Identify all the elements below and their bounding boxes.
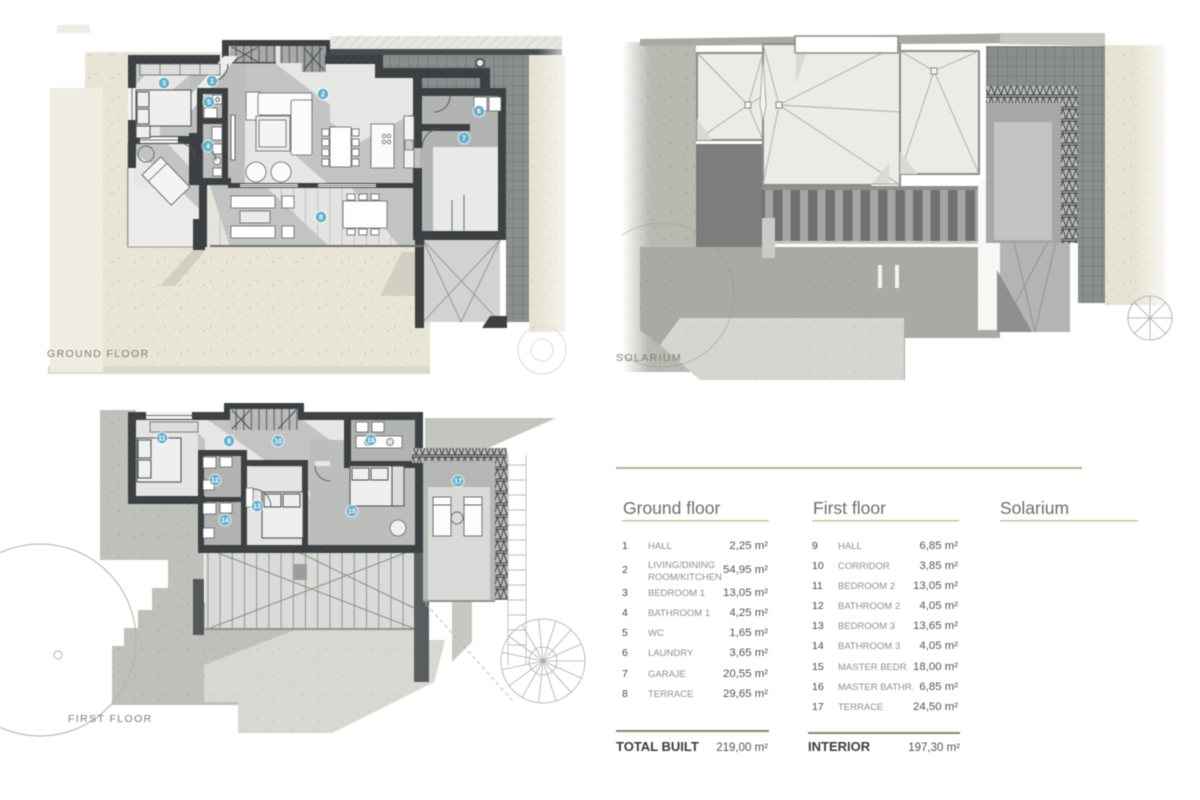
svg-text:54,95 m²: 54,95 m² [723,564,768,576]
svg-text:BATHROOM 1: BATHROOM 1 [648,608,710,619]
svg-text:14: 14 [221,518,229,525]
svg-text:12: 12 [211,478,219,485]
svg-text:14: 14 [812,640,824,652]
svg-text:13: 13 [812,620,824,632]
svg-text:TERRACE: TERRACE [838,702,883,713]
svg-text:2: 2 [321,92,325,99]
svg-text:FIRST FLOOR: FIRST FLOOR [68,713,153,725]
svg-text:BATHROOM 3: BATHROOM 3 [838,641,900,652]
svg-text:Ground floor: Ground floor [623,498,720,518]
svg-text:HALL: HALL [838,541,862,552]
svg-text:6: 6 [477,109,481,116]
svg-text:16: 16 [367,438,375,445]
svg-text:1: 1 [622,540,628,552]
svg-text:219,00 m²: 219,00 m² [716,742,768,754]
svg-text:GARAJE: GARAJE [648,669,686,680]
svg-text:29,65 m²: 29,65 m² [723,688,768,700]
svg-text:2: 2 [622,564,628,576]
svg-text:13,65 m²: 13,65 m² [913,620,958,632]
svg-text:SOLARIUM: SOLARIUM [616,352,682,364]
svg-text:7: 7 [622,668,628,680]
svg-text:5: 5 [622,627,628,639]
svg-text:WC: WC [648,628,664,639]
svg-text:BATHROOM 2: BATHROOM 2 [838,601,900,612]
svg-text:LIVING/DINING: LIVING/DINING [648,560,715,571]
svg-text:8: 8 [622,688,628,700]
svg-text:5: 5 [207,100,211,107]
svg-text:8: 8 [319,215,323,222]
svg-text:15: 15 [348,509,356,516]
svg-text:24,50 m²: 24,50 m² [913,701,958,713]
svg-text:4,05 m²: 4,05 m² [919,640,958,652]
svg-text:10: 10 [812,560,824,572]
svg-text:3,85 m²: 3,85 m² [919,560,958,572]
svg-text:18,00 m²: 18,00 m² [913,661,958,673]
svg-text:1: 1 [210,79,214,86]
svg-text:12: 12 [812,600,824,612]
svg-text:LAUNDRY: LAUNDRY [648,648,694,659]
svg-text:7: 7 [462,136,466,143]
svg-text:MASTER BEDR.: MASTER BEDR. [838,662,909,673]
svg-text:MASTER BATHR.: MASTER BATHR. [838,682,914,693]
svg-text:1,65 m²: 1,65 m² [729,627,768,639]
svg-text:11: 11 [812,580,823,592]
svg-text:GROUND FLOOR: GROUND FLOOR [47,348,150,360]
svg-text:4: 4 [206,144,210,151]
svg-text:CORRIDOR: CORRIDOR [838,561,890,572]
svg-text:197,30 m²: 197,30 m² [908,742,960,754]
svg-text:16: 16 [812,681,824,693]
svg-text:13,05 m²: 13,05 m² [913,580,958,592]
svg-text:6,85 m²: 6,85 m² [919,540,958,552]
svg-text:11: 11 [158,436,166,443]
svg-text:17: 17 [454,479,462,486]
svg-text:13: 13 [253,504,261,511]
svg-text:TERRACE: TERRACE [648,689,693,700]
svg-text:3,65 m²: 3,65 m² [729,647,768,659]
svg-text:4,05 m²: 4,05 m² [919,600,958,612]
svg-text:13,05 m²: 13,05 m² [723,587,768,599]
svg-text:4,25 m²: 4,25 m² [729,607,768,619]
svg-text:3: 3 [162,81,166,88]
svg-text:INTERIOR: INTERIOR [808,739,871,754]
svg-text:Solarium: Solarium [1000,498,1069,518]
svg-text:BEDROOM 3: BEDROOM 3 [838,621,895,632]
svg-text:20,55 m²: 20,55 m² [723,668,768,680]
svg-text:BEDROOM 2: BEDROOM 2 [838,581,895,592]
svg-text:3: 3 [622,587,628,599]
svg-text:ROOM/KITCHEN: ROOM/KITCHEN [648,572,722,583]
svg-text:TOTAL BUILT: TOTAL BUILT [616,739,699,754]
svg-text:6,85 m²: 6,85 m² [919,681,958,693]
svg-text:BEDROOM 1: BEDROOM 1 [648,588,705,599]
svg-text:First floor: First floor [813,498,886,518]
svg-text:9: 9 [227,439,231,446]
svg-text:10: 10 [274,439,282,446]
svg-text:HALL: HALL [648,541,672,552]
svg-text:4: 4 [622,607,628,619]
svg-text:6: 6 [622,647,628,659]
svg-text:9: 9 [812,540,818,552]
svg-text:15: 15 [812,661,824,673]
svg-text:17: 17 [812,701,824,713]
svg-text:2,25 m²: 2,25 m² [729,540,768,552]
